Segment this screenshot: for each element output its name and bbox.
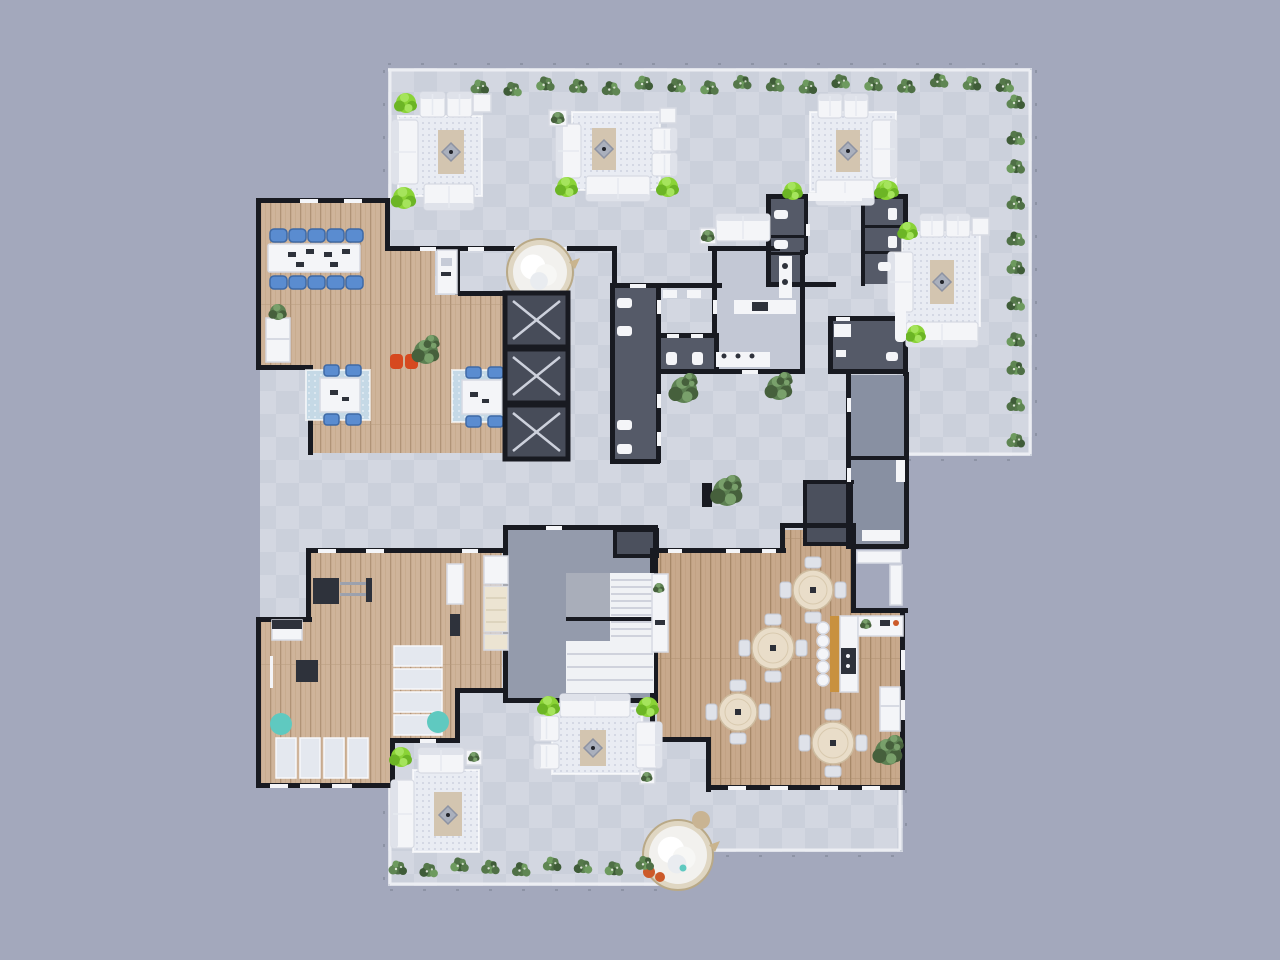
hedge-plant <box>744 81 752 89</box>
door-opening <box>713 300 717 314</box>
hedge-plant <box>399 867 407 875</box>
desk-chair-blue <box>270 276 287 289</box>
pocket-bench <box>857 551 901 563</box>
foliage <box>782 189 792 199</box>
hedge-speckle <box>1018 438 1020 440</box>
hedge-speckle <box>426 870 428 872</box>
yoga-mat <box>394 646 442 666</box>
foliage <box>865 625 869 629</box>
desk-chair-blue <box>289 229 306 242</box>
gym-barbell <box>270 656 273 688</box>
elevator-shaft-1 <box>505 293 568 347</box>
lounge-d-armchair-2 <box>946 214 970 237</box>
hedge-speckle <box>642 863 644 865</box>
hedge-speckle <box>457 865 459 867</box>
wall-segment <box>803 542 854 546</box>
hedge-plant <box>875 83 883 91</box>
door-opening <box>668 549 682 553</box>
wall-segment <box>769 252 806 255</box>
desk-chair-blue <box>289 276 306 289</box>
chair-blue <box>466 416 481 427</box>
hedge-speckle <box>608 88 610 90</box>
foliage <box>710 489 725 504</box>
foliage <box>897 229 907 239</box>
wall-segment <box>613 528 659 532</box>
counter-item <box>655 620 665 625</box>
coworking-long-table <box>268 244 360 272</box>
laptop <box>306 249 314 254</box>
lounge-f-sofa-top <box>418 748 464 773</box>
shower-fixture <box>774 210 788 219</box>
hedge-speckle <box>936 81 938 83</box>
hedge-speckle <box>575 86 577 88</box>
hedge-speckle <box>477 87 479 89</box>
hedge-speckle <box>580 866 582 868</box>
wall-segment <box>861 198 865 286</box>
wc-toilet <box>692 352 703 365</box>
foliage <box>656 583 661 588</box>
hedge-plant <box>553 863 561 871</box>
desk-chair-blue <box>308 276 325 289</box>
foliage <box>704 230 709 235</box>
hedge-plant <box>612 88 620 96</box>
faucet <box>722 354 727 359</box>
door-opening <box>806 224 810 236</box>
bathtub <box>895 296 906 342</box>
foliage <box>728 475 735 482</box>
hedge-speckle <box>1002 85 1004 87</box>
lounge-e-armchair-2 <box>534 744 559 769</box>
foliage <box>886 753 896 763</box>
hedge-speckle <box>611 869 613 871</box>
gym-locker-bottom <box>484 634 508 650</box>
cafe-chair <box>796 640 807 656</box>
foliage <box>397 187 407 197</box>
wall-segment <box>455 688 507 693</box>
hedge-plant <box>1017 101 1025 109</box>
hedge-plant <box>645 82 653 90</box>
counter-item <box>880 620 890 626</box>
east-room-shelf <box>862 530 900 541</box>
hedge-plant <box>1017 440 1025 448</box>
hedge-speckle <box>646 81 648 83</box>
hedge-speckle <box>395 868 397 870</box>
foliage <box>395 747 404 756</box>
foliage <box>537 704 548 715</box>
hedge-speckle <box>1018 237 1020 239</box>
meeting-table-2 <box>462 380 502 414</box>
chair-blue <box>466 367 481 378</box>
hedge-speckle <box>744 80 746 82</box>
bar-stool <box>817 648 829 660</box>
lounge-c-armchair-2 <box>844 94 868 118</box>
cafe-chair <box>856 735 867 751</box>
wall-segment <box>851 523 856 613</box>
lounge-a-side-table <box>473 94 491 112</box>
wall-segment <box>610 459 660 464</box>
foliage <box>686 373 692 379</box>
cafe-chair <box>780 582 791 598</box>
hedge-plant <box>1017 166 1025 174</box>
hedge-plant <box>584 866 592 874</box>
foliage <box>725 493 736 504</box>
foliage <box>641 776 647 782</box>
door-opening <box>546 526 562 530</box>
foliage <box>723 481 732 490</box>
kitchenette-sink <box>441 258 452 266</box>
hedge-speckle <box>1013 404 1015 406</box>
kitchen-fridge <box>880 687 900 731</box>
door-opening <box>344 199 362 203</box>
gym-treadmill-rail <box>340 593 370 596</box>
lounge-d-armchair-1 <box>920 214 944 237</box>
door-opening <box>847 468 851 482</box>
cafe-chair <box>799 735 810 751</box>
hedge-plant <box>492 866 500 874</box>
wall-segment <box>258 198 390 203</box>
gym-bench-pad <box>272 620 302 629</box>
lounge-b-armchair-2 <box>652 153 677 176</box>
hedge-speckle <box>1018 201 1020 203</box>
wall-segment <box>706 737 711 792</box>
hedge-speckle <box>810 85 812 87</box>
lounge-a-armchair-1 <box>420 92 445 117</box>
hedge-speckle <box>712 86 714 88</box>
cafe-chair <box>730 733 746 744</box>
foliage <box>662 177 671 186</box>
wall-segment <box>567 246 617 251</box>
gym-shelf-unit <box>484 586 508 632</box>
door-opening <box>420 247 436 251</box>
hedge-plant <box>523 869 531 877</box>
foliage <box>668 387 682 401</box>
wall-segment <box>780 523 856 528</box>
laptop <box>324 252 332 257</box>
foliage <box>653 587 659 593</box>
desk-chair-blue <box>327 229 344 242</box>
hedge-speckle <box>1018 402 1020 404</box>
hedge-plant <box>579 85 587 93</box>
door-opening <box>657 432 661 446</box>
door-opening <box>762 549 776 553</box>
cafe-chair <box>825 766 841 777</box>
foliage <box>268 310 277 319</box>
hedge-speckle <box>805 87 807 89</box>
table-decor <box>770 645 776 651</box>
door-opening <box>820 786 838 790</box>
shower-tray <box>834 324 851 337</box>
lounge-e-armchair-1 <box>534 716 559 741</box>
foliage <box>915 335 922 342</box>
cafe-chair <box>765 671 781 682</box>
table-decor <box>735 709 741 715</box>
urinal <box>888 208 897 220</box>
foliage <box>473 758 477 762</box>
gym-equipment-dark <box>450 614 460 636</box>
hedge-speckle <box>613 86 615 88</box>
bar-stool <box>817 622 829 634</box>
hedge-plant <box>1006 84 1014 92</box>
gym-weight-stack <box>366 578 372 602</box>
lounge-c-sofa-bottom <box>816 180 874 205</box>
stair-upper-flight <box>610 573 654 643</box>
hedge-speckle <box>616 867 618 869</box>
foliage <box>543 696 552 705</box>
pantry-stove <box>752 302 768 311</box>
foliage <box>400 93 409 102</box>
wall-segment <box>828 369 908 374</box>
cafe-chair <box>739 640 750 656</box>
chair-blue <box>488 416 503 427</box>
hedge-plant <box>973 83 981 91</box>
foliage <box>656 185 667 196</box>
hedge-speckle <box>482 85 484 87</box>
chair-red <box>390 354 403 369</box>
room-wc-cells-floor <box>658 336 716 370</box>
desk-chair-blue <box>346 276 363 289</box>
door-opening <box>630 284 646 288</box>
foliage <box>732 484 738 490</box>
door-opening <box>691 334 703 338</box>
hedge-speckle <box>549 864 551 866</box>
foliage <box>872 749 886 763</box>
wall-segment <box>851 608 908 613</box>
sink-bowl <box>782 263 788 269</box>
wall-segment <box>769 235 806 238</box>
wc-sink <box>687 290 701 298</box>
gym-treadmill-base <box>313 578 339 604</box>
fridge-divider <box>880 705 900 707</box>
foliage <box>557 119 562 124</box>
laptop <box>330 262 338 267</box>
foliage <box>781 372 787 378</box>
door-opening <box>657 394 661 408</box>
hedge-speckle <box>1013 340 1015 342</box>
fire-bowl <box>940 280 944 284</box>
lounge-e-loveseat <box>636 722 662 768</box>
lounge-b-sofa-bottom <box>586 176 650 201</box>
foliage <box>428 335 434 341</box>
hedge-speckle <box>772 85 774 87</box>
lounge-f-chaise <box>391 780 414 848</box>
foliage <box>890 735 897 742</box>
foliage <box>412 349 425 362</box>
hedge-speckle <box>1013 102 1015 104</box>
laptop <box>342 397 349 401</box>
wall-segment <box>613 528 617 558</box>
yoga-mat <box>324 738 344 778</box>
foliage <box>777 389 787 399</box>
cafe-chair <box>706 704 717 720</box>
foliage <box>636 705 647 716</box>
wall-segment <box>458 291 508 296</box>
wall-segment <box>256 365 312 370</box>
cafe-chair <box>805 557 821 568</box>
wc-sink <box>663 290 677 298</box>
foliage <box>682 378 690 386</box>
wall-segment <box>862 225 904 228</box>
foliage <box>424 340 432 348</box>
bath-sink-column <box>779 256 792 298</box>
door-opening <box>300 784 320 788</box>
door-opening <box>742 370 758 374</box>
shower-fixture <box>774 240 788 249</box>
foliage <box>707 237 712 242</box>
foliage <box>863 619 868 624</box>
room-wc-column-floor <box>613 286 658 460</box>
bar-stool <box>817 661 829 673</box>
foliage <box>405 104 413 112</box>
hedge-speckle <box>515 87 517 89</box>
door-opening <box>462 549 478 553</box>
door-opening <box>901 700 905 720</box>
gym-treadmill-rail <box>340 582 370 585</box>
hedge-speckle <box>739 82 741 84</box>
door-opening <box>836 317 850 321</box>
bath-sink <box>836 350 846 357</box>
foliage <box>907 232 914 239</box>
hedge-speckle <box>1018 366 1020 368</box>
hedge-speckle <box>1013 267 1015 269</box>
wc-toilet <box>617 420 632 430</box>
hedge-plant <box>908 85 916 93</box>
hedge-plant <box>615 868 623 876</box>
lounge-a-sofa-bottom <box>424 184 474 210</box>
door-opening <box>901 650 905 670</box>
fire-bowl <box>602 147 606 151</box>
counter-item-orange <box>893 620 899 626</box>
foliage <box>277 313 283 319</box>
hedge-speckle <box>554 862 556 864</box>
foliage <box>860 623 866 629</box>
desk-chair-blue <box>270 229 287 242</box>
wall-segment <box>385 198 390 250</box>
desk-chair-blue <box>327 276 344 289</box>
hedge-speckle <box>641 83 643 85</box>
hedge-speckle <box>1018 164 1020 166</box>
foliage <box>402 199 411 208</box>
chair-blue <box>346 414 361 425</box>
sofa-back <box>670 153 677 176</box>
fire-bowl <box>449 150 453 154</box>
terrace-bench-sofa <box>716 214 770 241</box>
fridge-divider <box>266 338 290 340</box>
pocket-bench <box>890 565 902 605</box>
hedge-plant <box>430 869 438 877</box>
yoga-mat <box>300 738 320 778</box>
foliage <box>765 385 778 398</box>
hedge-speckle <box>585 865 587 867</box>
hedge-speckle <box>1013 304 1015 306</box>
hedge-speckle <box>674 85 676 87</box>
foliage <box>792 192 799 199</box>
foliage <box>642 697 651 706</box>
wc-toilet <box>617 326 632 336</box>
hedge-speckle <box>876 82 878 84</box>
foliage <box>667 188 675 196</box>
wall-segment <box>655 528 659 558</box>
hedge-speckle <box>510 89 512 91</box>
hedge-speckle <box>487 867 489 869</box>
gym-locker-top <box>484 556 508 584</box>
hedge-plant <box>547 83 555 91</box>
sink-bowl <box>782 279 788 285</box>
hedge-plant <box>1017 367 1025 375</box>
hedge-speckle <box>777 83 779 85</box>
hedge-speckle <box>903 86 905 88</box>
foliage <box>555 185 566 196</box>
hedge-plant <box>809 86 817 94</box>
exercise-ball <box>427 711 449 733</box>
floor-plan-svg <box>0 0 1280 960</box>
foliage <box>905 332 915 342</box>
hedge-plant <box>1017 137 1025 145</box>
hedge-plant <box>514 88 522 96</box>
island-cooktop <box>841 648 856 674</box>
lounge-b-armchair-1 <box>652 128 677 151</box>
foliage <box>424 353 434 363</box>
foliage <box>878 188 888 198</box>
foliage <box>682 391 692 401</box>
lounge-c-armchair-1 <box>818 94 842 118</box>
room-storage-floor <box>806 483 850 543</box>
hedge-plant <box>842 81 850 89</box>
hedge-speckle <box>518 869 520 871</box>
wc-toilet <box>886 352 898 361</box>
chair-blue <box>324 365 339 376</box>
meeting-table-1 <box>320 378 360 412</box>
stair-lower-flight <box>566 641 654 693</box>
wall-segment <box>256 617 261 788</box>
foliage <box>566 188 574 196</box>
foliage <box>644 772 649 777</box>
hedge-plant <box>646 862 654 870</box>
kitchenette-stove <box>441 272 451 276</box>
hedge-speckle <box>431 868 433 870</box>
foliage <box>548 707 556 715</box>
hedge-speckle <box>941 79 943 81</box>
gym-squat-rack <box>296 660 318 682</box>
wall-segment <box>803 480 807 546</box>
hedge-speckle <box>1007 83 1009 85</box>
door-opening <box>667 334 679 338</box>
cafe-chair <box>825 709 841 720</box>
foliage <box>701 235 708 242</box>
foliage <box>911 325 919 333</box>
yoga-mat <box>394 692 442 712</box>
foliage <box>551 117 558 124</box>
hedge-plant <box>1017 404 1025 412</box>
wc-toilet <box>878 262 891 271</box>
foliage <box>777 377 785 385</box>
chair-blue <box>488 367 503 378</box>
hedge-speckle <box>1018 338 1020 340</box>
foliage <box>431 343 437 349</box>
door-opening <box>726 549 740 553</box>
hedge-speckle <box>1013 203 1015 205</box>
hedge-speckle <box>647 861 649 863</box>
hedge-speckle <box>1018 136 1020 138</box>
hedge-speckle <box>462 863 464 865</box>
foliage <box>689 381 695 387</box>
hedge-speckle <box>580 84 582 86</box>
cafe-chair <box>835 582 846 598</box>
side-table-round <box>692 811 710 829</box>
exercise-ball <box>270 713 292 735</box>
foliage <box>394 101 405 112</box>
hedge-speckle <box>1013 440 1015 442</box>
sofa-back <box>534 744 541 769</box>
